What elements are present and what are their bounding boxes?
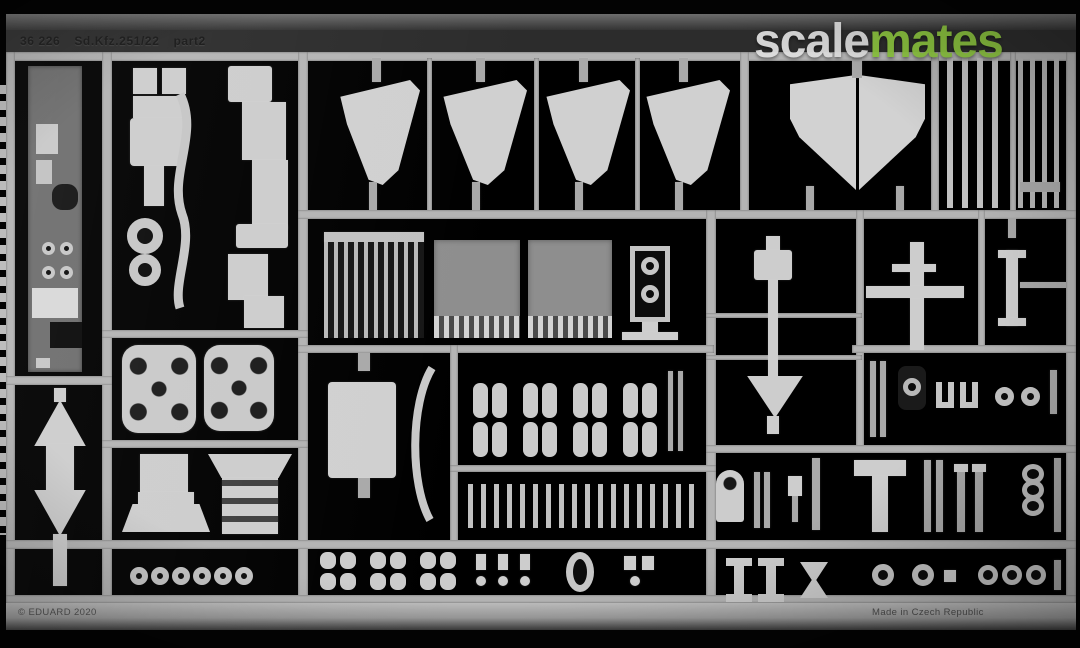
pe-part (1054, 560, 1061, 590)
small-cluster (370, 552, 406, 590)
box-part (328, 382, 396, 478)
pe-part (812, 458, 820, 530)
pe-part (623, 422, 638, 457)
pe-part (53, 534, 67, 586)
pe-part (1050, 370, 1057, 414)
pe-part (912, 564, 934, 586)
watermark-green-text: mates (869, 15, 1003, 68)
pe-part (492, 422, 507, 457)
pe-part (133, 68, 157, 94)
pe-part (236, 224, 288, 248)
fret-frame-rail (856, 210, 864, 453)
pe-part (523, 383, 538, 418)
fret-frame-rail (298, 345, 714, 353)
fret-frame-rail (706, 355, 862, 360)
fret-frame-rail (740, 52, 749, 218)
pe-part (42, 266, 55, 279)
pe-part (498, 576, 508, 586)
pe-part (476, 58, 485, 82)
fret-frame-rail (706, 445, 1076, 453)
coil-part (1022, 464, 1046, 524)
fret-frame-rail (427, 58, 432, 216)
pe-part (668, 371, 673, 451)
pe-part (440, 573, 456, 590)
pe-part (766, 566, 776, 594)
fret-frame-rail (706, 313, 862, 318)
pe-part (975, 472, 983, 532)
pe-part (679, 58, 688, 82)
fret-frame-rail (102, 330, 308, 338)
shield-half-right (859, 75, 925, 190)
pe-part (936, 460, 943, 532)
pe-part (1006, 250, 1018, 326)
pe-part (228, 254, 268, 300)
pe-part (575, 182, 583, 210)
light-bracket (630, 246, 670, 322)
u-part (936, 382, 954, 408)
hole-plate (122, 345, 196, 433)
pe-part (872, 476, 888, 532)
pe-part (492, 383, 507, 418)
pe-part (642, 383, 657, 418)
copyright-text: © EDUARD 2020 (18, 607, 97, 618)
pe-part (235, 567, 253, 585)
pe-part (122, 504, 210, 532)
pe-part (758, 558, 784, 566)
pe-fret-photo: 36 226Sd.Kfz.251/22part2 (0, 0, 1080, 648)
pe-part (472, 182, 480, 210)
shield-half-left (790, 75, 856, 190)
pe-part (390, 573, 406, 590)
pe-part (140, 454, 188, 494)
pe-part (36, 160, 52, 184)
pe-part (642, 422, 657, 457)
pe-part (854, 460, 906, 476)
pe-part (903, 378, 921, 396)
pe-part (415, 368, 432, 520)
pe-part (924, 460, 931, 532)
fret-frame-rail (6, 376, 112, 385)
fret-frame-rail (298, 210, 1076, 219)
pe-part (746, 376, 804, 418)
clamp-cluster (573, 383, 607, 457)
pe-part (972, 464, 986, 472)
pe-part (542, 383, 557, 418)
pe-part (896, 186, 904, 210)
pe-part (50, 322, 82, 348)
pe-part (369, 182, 377, 210)
oval-ring-part (566, 552, 594, 592)
pe-part (1008, 218, 1016, 238)
fret-frame-rail (102, 440, 308, 448)
pe-part (473, 422, 488, 457)
pe-part (32, 400, 88, 446)
pe-part (1026, 565, 1046, 585)
pe-part (678, 371, 683, 451)
fret-part-label: part2 (173, 34, 205, 48)
scalemates-watermark: scalemates (754, 18, 1003, 66)
pe-part (523, 422, 538, 457)
pe-part (370, 573, 386, 590)
pe-part (1002, 565, 1022, 585)
pe-part (32, 490, 88, 536)
pe-part (1020, 282, 1066, 288)
pe-part (642, 556, 654, 570)
x-part (800, 562, 828, 598)
pe-part (127, 218, 163, 254)
pe-part (252, 160, 288, 230)
pe-part (340, 573, 356, 590)
pe-part (792, 496, 798, 522)
pe-part (592, 422, 607, 457)
pe-part (957, 472, 965, 532)
pe-part (52, 184, 78, 210)
pe-part (1022, 496, 1044, 516)
pe-part (42, 242, 55, 255)
pe-part (872, 564, 894, 586)
pe-part (228, 66, 272, 102)
pe-part (542, 422, 557, 457)
pe-part (623, 383, 638, 418)
pe-part (358, 353, 370, 371)
pe-part (320, 552, 336, 569)
s-curve-part (166, 94, 206, 314)
pe-part (244, 296, 284, 328)
tombstone-part (716, 470, 744, 522)
pe-part (866, 286, 964, 298)
pe-part (1021, 387, 1040, 406)
pe-part (372, 58, 381, 82)
pe-part (340, 552, 356, 569)
pe-part (144, 166, 164, 206)
pe-part (880, 361, 886, 437)
made-in-text: Made in Czech Republic (872, 607, 984, 618)
part-instrument-strip (28, 66, 82, 372)
pe-part (60, 266, 73, 279)
pe-part (622, 332, 678, 340)
pe-part (193, 567, 211, 585)
pe-part (630, 576, 640, 586)
pe-part (758, 594, 784, 602)
pe-part (764, 472, 770, 528)
pe-part (573, 383, 588, 418)
pe-part (476, 554, 486, 570)
fret-frame-rail (1010, 52, 1016, 218)
pe-part (440, 552, 456, 569)
ringed-pad (898, 366, 926, 410)
hole-plate (204, 345, 274, 431)
fret-frame-rail (635, 58, 640, 216)
pe-part (208, 454, 292, 478)
pe-part (420, 573, 436, 590)
pe-part (573, 422, 588, 457)
pe-part (129, 254, 161, 286)
pe-part (592, 383, 607, 418)
fret-frame-rail (978, 210, 985, 353)
pe-part (130, 567, 148, 585)
pe-part (528, 316, 612, 338)
fret-frame-rail (852, 345, 1076, 353)
shield-part (643, 80, 730, 185)
pe-part (641, 257, 659, 275)
pe-part (36, 358, 50, 368)
clamp-cluster (623, 383, 657, 457)
pe-part (870, 361, 876, 437)
pe-part (358, 478, 370, 498)
small-cluster (420, 552, 456, 590)
shield-part (543, 80, 630, 185)
u-part (960, 382, 978, 408)
pe-part (476, 576, 486, 586)
pe-part (520, 576, 530, 586)
pe-part (214, 567, 232, 585)
small-strip-row (468, 484, 700, 528)
pe-part (32, 288, 78, 318)
pe-part (178, 94, 187, 308)
pe-part (520, 554, 530, 570)
tread-plate (528, 240, 612, 338)
pe-part (624, 556, 636, 570)
pe-part (320, 573, 336, 590)
pe-part (138, 492, 194, 504)
pe-part (46, 444, 74, 492)
pe-part (54, 388, 66, 402)
photoetch-sheet: 36 226Sd.Kfz.251/22part2 (6, 14, 1076, 630)
pe-part (172, 567, 190, 585)
pe-part (473, 383, 488, 418)
watermark-gray-text: scale (754, 15, 869, 68)
shield-part (440, 80, 527, 185)
pe-part (420, 552, 436, 569)
fret-title: 36 226Sd.Kfz.251/22part2 (20, 34, 220, 48)
fret-frame-rail (931, 52, 939, 218)
pe-part (978, 565, 998, 585)
small-cluster (320, 552, 356, 590)
fret-frame-rail (298, 52, 308, 603)
pe-part (162, 68, 186, 94)
fret-frame-rail (1066, 52, 1076, 603)
grille-part (324, 242, 424, 338)
pe-part (579, 58, 588, 82)
pe-part (324, 232, 424, 242)
pe-part (1020, 182, 1060, 192)
fret-frame-rail (6, 595, 1076, 603)
sheet-bottom-edge: © EDUARD 2020 Made in Czech Republic (6, 603, 1076, 630)
pe-part (641, 285, 659, 303)
ibeam-part (726, 558, 752, 602)
pe-part (390, 552, 406, 569)
pe-part (242, 102, 286, 160)
pe-part (734, 566, 744, 594)
shield-part (337, 80, 420, 185)
pe-part (754, 472, 760, 528)
pe-part (944, 570, 956, 582)
strip-rack (947, 58, 1005, 208)
oval-chain (130, 567, 253, 585)
pe-part (726, 558, 752, 566)
clamp-cluster (473, 383, 507, 457)
ibeam-part (758, 558, 784, 602)
pe-part (726, 594, 752, 602)
fret-subject: Sd.Kfz.251/22 (74, 34, 159, 48)
pe-part (806, 186, 814, 210)
fret-frame-rail (102, 52, 112, 603)
pe-part (36, 124, 58, 154)
pe-part (768, 280, 778, 378)
pe-part (222, 478, 278, 534)
clamp-cluster (523, 383, 557, 457)
fret-frame-rail (534, 58, 539, 216)
curved-bracket-part (404, 364, 440, 524)
tread-plate (434, 240, 520, 338)
pe-part (675, 182, 683, 210)
arrow-shaft-part (754, 250, 792, 280)
pe-part (767, 416, 779, 434)
pe-part (151, 567, 169, 585)
pe-part (370, 552, 386, 569)
pe-part (60, 242, 73, 255)
pe-part (995, 387, 1014, 406)
fret-frame-rail (6, 540, 1076, 549)
fret-code: 36 226 (20, 34, 60, 48)
fret-frame-rail (450, 345, 458, 549)
fret-frame-rail (450, 465, 716, 472)
pe-part (954, 464, 968, 472)
pe-part (434, 316, 520, 338)
fret-frame-rail (6, 52, 15, 603)
pe-part (498, 554, 508, 570)
pe-part (1054, 458, 1061, 532)
pe-part (998, 318, 1026, 326)
pe-part (788, 476, 802, 496)
